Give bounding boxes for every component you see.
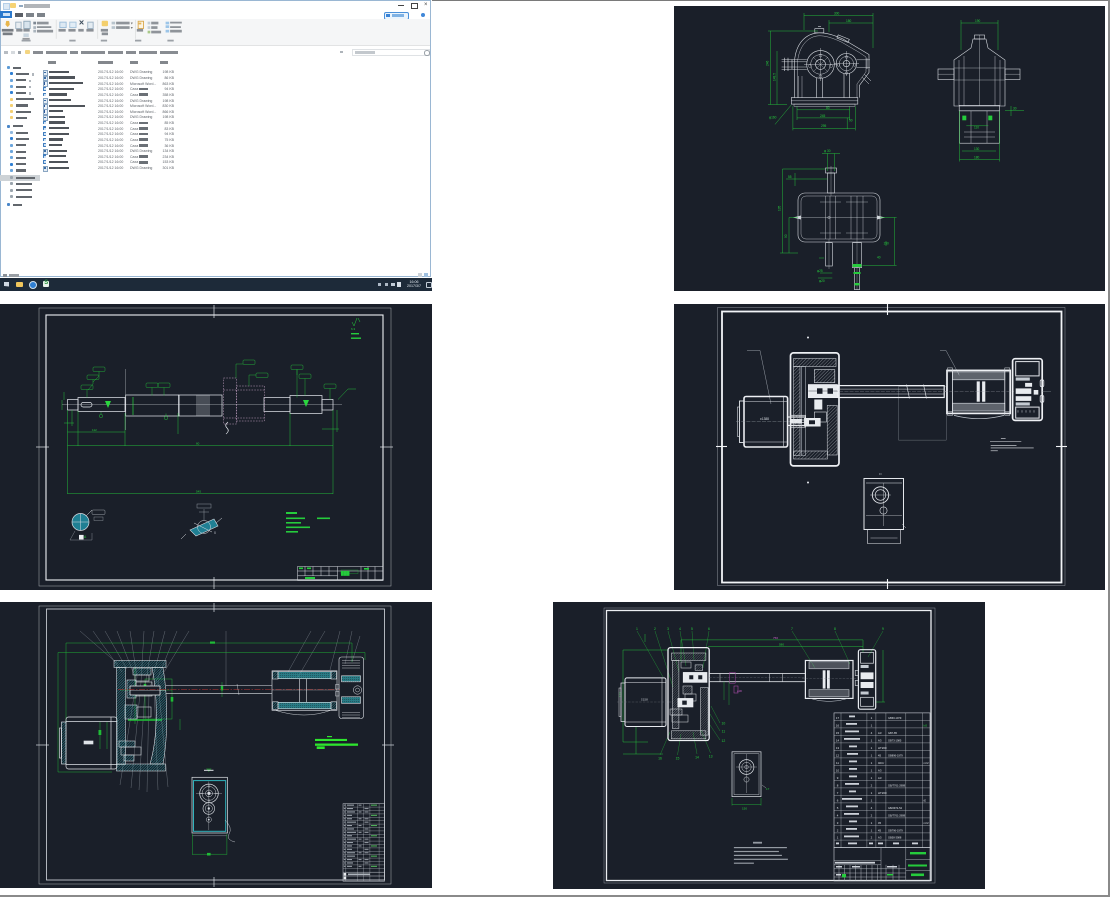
svg-text:8: 8 — [837, 783, 839, 787]
svg-text:14: 14 — [836, 738, 840, 742]
svg-text:180: 180 — [974, 155, 980, 159]
svg-text:GB/2972-54: GB/2972-54 — [888, 806, 903, 810]
svg-text:9: 9 — [882, 627, 884, 631]
svg-text:300: 300 — [834, 11, 840, 15]
svg-text:135: 135 — [778, 205, 782, 211]
svg-text:150: 150 — [884, 242, 890, 246]
svg-text:1: 1 — [871, 798, 873, 802]
svg-text:15: 15 — [836, 731, 840, 735]
svg-text:110: 110 — [974, 126, 979, 130]
svg-text:4: 4 — [871, 731, 873, 735]
svg-text:148.5: 148.5 — [773, 73, 777, 81]
svg-text:1: 1 — [871, 828, 873, 832]
svg-text:B: B — [214, 531, 216, 535]
svg-text:1: 1 — [871, 791, 873, 795]
svg-text:GB60-1979: GB60-1979 — [888, 716, 902, 720]
svg-text:3: 3 — [667, 627, 669, 631]
svg-text:2: 2 — [871, 813, 873, 817]
svg-text:13: 13 — [709, 755, 713, 759]
svg-text:180: 180 — [846, 19, 852, 23]
svg-text:580: 580 — [779, 642, 784, 646]
svg-text:3: 3 — [837, 821, 839, 825]
svg-text:φ160: φ160 — [769, 116, 777, 120]
svg-text:1: 1 — [871, 776, 873, 780]
svg-text:245: 245 — [820, 114, 826, 118]
svg-text:7: 7 — [837, 791, 839, 795]
svg-text:GB896-1979: GB896-1979 — [888, 753, 903, 757]
svg-text:15: 15 — [676, 757, 680, 761]
svg-text:1: 1 — [871, 738, 873, 742]
svg-text:I:I: I:I — [879, 472, 882, 476]
svg-text:A: A — [84, 535, 87, 539]
svg-text:40Cr: 40Cr — [878, 761, 884, 765]
svg-text:1: 1 — [871, 746, 873, 750]
svg-text:16: 16 — [658, 757, 662, 761]
svg-text:13: 13 — [836, 746, 840, 750]
svg-text:11: 11 — [722, 729, 726, 733]
svg-text:φ20: φ20 — [819, 279, 825, 283]
svg-text:16: 16 — [836, 723, 840, 727]
svg-text:HT200: HT200 — [878, 746, 887, 750]
svg-text:4: 4 — [837, 813, 839, 817]
svg-text:φ25: φ25 — [817, 269, 823, 273]
svg-text:1: 1 — [871, 761, 873, 765]
svg-text:5: 5 — [837, 806, 839, 810]
svg-text:1: 1 — [871, 821, 873, 825]
svg-text:4: 4 — [871, 806, 873, 810]
svg-text:m=2: m=2 — [924, 821, 930, 825]
svg-text:tE: tE — [924, 798, 927, 802]
svg-text:17: 17 — [836, 716, 840, 720]
svg-text:2: 2 — [871, 783, 873, 787]
svg-text:130: 130 — [974, 147, 980, 151]
svg-text:2: 2 — [871, 836, 873, 840]
svg-text:55: 55 — [788, 175, 792, 179]
svg-text:45: 45 — [878, 753, 882, 757]
svg-text:295: 295 — [821, 124, 827, 128]
svg-text:1: 1 — [871, 753, 873, 757]
svg-text:≡158: ≡158 — [641, 698, 648, 702]
svg-text:A3: A3 — [878, 738, 882, 742]
svg-text:m=2: m=2 — [924, 761, 930, 765]
svg-text:7: 7 — [791, 627, 793, 631]
svg-text:756: 756 — [773, 636, 778, 640]
svg-text:60: 60 — [196, 441, 200, 445]
svg-text:2: 2 — [654, 627, 656, 631]
svg-text:A3: A3 — [878, 731, 882, 735]
svg-text:8: 8 — [834, 627, 836, 631]
svg-text:1: 1 — [871, 768, 873, 772]
svg-text:≡1388: ≡1388 — [760, 417, 769, 421]
svg-text:A3: A3 — [878, 776, 882, 780]
svg-text:12: 12 — [722, 739, 726, 743]
svg-text:GB7-85: GB7-85 — [888, 731, 897, 735]
svg-text:150: 150 — [742, 807, 747, 811]
svg-text:14: 14 — [695, 756, 699, 760]
svg-text:A3: A3 — [878, 836, 882, 840]
svg-text:190: 190 — [975, 19, 981, 23]
svg-text:GB58-3988: GB58-3988 — [888, 836, 902, 840]
svg-text:246: 246 — [766, 60, 770, 66]
svg-text:9: 9 — [837, 776, 839, 780]
svg-text:GB73-1985: GB73-1985 — [888, 738, 902, 742]
svg-text:1: 1 — [871, 723, 873, 727]
svg-text:6.3: 6.3 — [351, 327, 356, 331]
svg-text:80: 80 — [826, 106, 830, 110]
svg-text:45: 45 — [878, 821, 882, 825]
svg-text:4: 4 — [679, 627, 681, 631]
svg-text:b/5: b/5 — [924, 723, 928, 727]
svg-text:GB/T761-2988: GB/T761-2988 — [888, 813, 906, 817]
svg-text:A3: A3 — [878, 768, 882, 772]
svg-text:HT200: HT200 — [878, 791, 887, 795]
svg-text:5: 5 — [691, 627, 693, 631]
svg-text:1: 1 — [871, 716, 873, 720]
svg-text:1: 1 — [636, 627, 638, 631]
svg-text:6: 6 — [708, 627, 710, 631]
svg-text:17: 17 — [766, 787, 770, 791]
svg-text:11: 11 — [836, 761, 839, 765]
svg-text:40: 40 — [877, 256, 881, 260]
svg-text:30: 30 — [1013, 107, 1017, 111]
svg-text:545: 545 — [196, 489, 201, 493]
svg-text:90: 90 — [784, 234, 788, 238]
svg-text:90: 90 — [849, 119, 853, 123]
svg-text:1: 1 — [837, 836, 839, 840]
svg-text:2: 2 — [837, 828, 839, 832]
svg-text:6: 6 — [837, 798, 839, 802]
svg-text:GB/T761-2988: GB/T761-2988 — [888, 783, 906, 787]
svg-text:10: 10 — [836, 768, 840, 772]
svg-text:12: 12 — [836, 753, 840, 757]
svg-text:φ 30: φ 30 — [824, 149, 831, 153]
svg-text:112: 112 — [92, 428, 97, 432]
svg-text:GB796-1979: GB796-1979 — [888, 828, 903, 832]
svg-text:10: 10 — [722, 722, 726, 726]
svg-text:45: 45 — [878, 828, 882, 832]
